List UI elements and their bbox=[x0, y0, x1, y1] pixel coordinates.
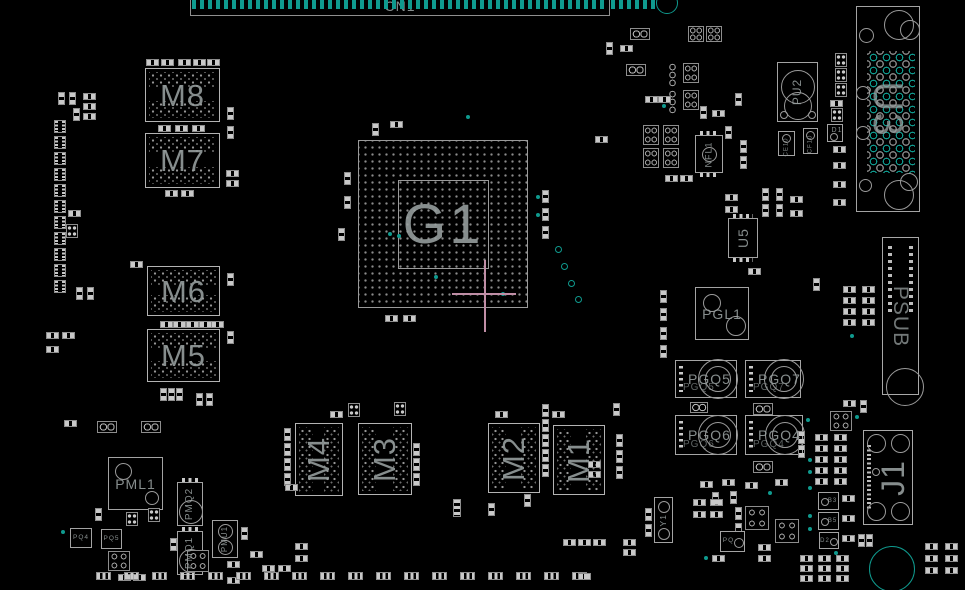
resistor-pack bbox=[54, 200, 66, 213]
smd-pad bbox=[843, 286, 856, 293]
smd-pad bbox=[680, 175, 693, 182]
cn1-pads-ext bbox=[611, 0, 657, 9]
fet-pgq6[interactable]: PGQ6 PGQ6 bbox=[675, 415, 737, 455]
smd-pad bbox=[180, 572, 195, 580]
smd-pad bbox=[524, 494, 531, 507]
via-strip bbox=[668, 63, 677, 87]
smd-pad bbox=[725, 126, 732, 139]
smd-pad bbox=[87, 287, 94, 300]
smd-pad bbox=[800, 555, 813, 562]
y1-pad-circle bbox=[658, 501, 670, 513]
d2-circle bbox=[830, 538, 838, 546]
smd-pad bbox=[403, 315, 416, 322]
smd-pad bbox=[563, 539, 576, 546]
smd-pad bbox=[800, 575, 813, 582]
memory-chip-m7[interactable]: M7 bbox=[145, 133, 220, 188]
b3-label: B3 bbox=[828, 498, 837, 504]
smd-pad bbox=[62, 332, 75, 339]
smd-pad bbox=[800, 565, 813, 572]
smd-pad bbox=[278, 565, 291, 572]
smd-pad bbox=[578, 573, 591, 580]
smd-pad bbox=[160, 321, 173, 328]
smd-pad bbox=[834, 456, 847, 463]
smd-pad bbox=[348, 403, 360, 417]
smd-pad bbox=[83, 103, 96, 110]
smd-pad bbox=[925, 543, 938, 550]
smd-pad bbox=[46, 346, 59, 353]
ic-pmu1[interactable]: PMU1 bbox=[212, 520, 238, 558]
u3-hole bbox=[859, 179, 872, 192]
cn1-pads bbox=[192, 0, 608, 9]
resistor-pack bbox=[54, 136, 66, 149]
smd-pad bbox=[748, 268, 761, 275]
smd-pad bbox=[815, 456, 828, 463]
smd-pad bbox=[404, 572, 419, 580]
u5-label: U5 bbox=[736, 228, 750, 248]
transistor bbox=[775, 519, 799, 543]
smd-pad bbox=[432, 572, 447, 580]
smd-pad bbox=[376, 572, 391, 580]
via-highlight bbox=[561, 263, 568, 270]
transistor bbox=[688, 26, 704, 42]
memory-chip-m2[interactable]: M2 bbox=[488, 423, 540, 493]
smd-pad bbox=[208, 572, 223, 580]
memory-chip-m8[interactable]: M8 bbox=[145, 68, 220, 122]
via-highlight bbox=[855, 415, 859, 419]
ic-nfl1[interactable]: NFL1 bbox=[695, 135, 723, 173]
y1-pad-circle bbox=[658, 528, 670, 540]
smd-pad bbox=[542, 190, 549, 203]
smd-pad bbox=[815, 445, 828, 452]
smd-pad bbox=[413, 443, 420, 456]
fet-pgq5[interactable]: PGQ5 PGQ5 bbox=[675, 360, 737, 398]
resistor-pack bbox=[54, 280, 66, 293]
capacitor bbox=[630, 28, 650, 40]
smd-pad bbox=[96, 572, 111, 580]
smd-pad bbox=[186, 321, 199, 328]
resistor-pack bbox=[54, 120, 66, 133]
smd-pad bbox=[146, 59, 159, 66]
smd-pad bbox=[862, 319, 875, 326]
resistor-pack bbox=[54, 184, 66, 197]
smd-pad bbox=[320, 572, 335, 580]
smd-pad bbox=[544, 572, 559, 580]
smd-pad bbox=[126, 512, 138, 526]
pml1-pin-circle bbox=[145, 491, 159, 505]
connector-j1[interactable]: J1 bbox=[863, 430, 913, 525]
via-highlight bbox=[662, 104, 666, 108]
transistor bbox=[706, 26, 722, 42]
pcb-board-canvas[interactable]: CN1 M8 M7 bbox=[0, 0, 965, 590]
j1-hole bbox=[891, 434, 910, 453]
bottom-pad-row bbox=[96, 572, 587, 580]
capacitor bbox=[141, 421, 161, 433]
smd-pad bbox=[925, 555, 938, 562]
smd-pad bbox=[833, 146, 846, 153]
smd-pad bbox=[693, 511, 706, 518]
inductor-pgl1[interactable]: PGL1 bbox=[695, 287, 749, 340]
crystal-y1[interactable]: Y1 bbox=[654, 497, 673, 543]
transistor bbox=[683, 63, 699, 83]
connector-u3[interactable]: U3 bbox=[856, 6, 920, 212]
smd-pad bbox=[660, 327, 667, 340]
pgq7-label-overlap: PGQ7 bbox=[753, 383, 785, 393]
resistor-pack bbox=[54, 248, 66, 261]
smd-pad bbox=[130, 261, 143, 268]
pu2-label: PU2 bbox=[792, 79, 804, 105]
memory-chip-m6[interactable]: M6 bbox=[147, 266, 220, 316]
smd-pad bbox=[227, 561, 240, 568]
smd-pad bbox=[68, 210, 81, 217]
smd-pad bbox=[693, 499, 706, 506]
capacitor bbox=[626, 64, 646, 76]
pmu1-label: PMU1 bbox=[221, 526, 229, 552]
smd-pad bbox=[236, 572, 251, 580]
smd-pad bbox=[227, 273, 234, 286]
memory-chip-m5[interactable]: M5 bbox=[147, 329, 220, 382]
ic-d2[interactable]: D2 bbox=[819, 532, 839, 549]
smd-pad bbox=[722, 479, 735, 486]
via-highlight bbox=[575, 296, 582, 303]
fet-pq5[interactable]: PQ5 bbox=[101, 529, 122, 549]
smd-pad bbox=[613, 403, 620, 416]
psub-label: PSUB bbox=[890, 285, 911, 346]
smd-pad bbox=[834, 478, 847, 485]
pmq1-label: PMQ1 bbox=[185, 537, 195, 569]
m8-label: M8 bbox=[160, 80, 205, 111]
memory-chip-m3[interactable]: M3 bbox=[358, 423, 412, 495]
smd-pad bbox=[798, 445, 805, 458]
smd-pad bbox=[152, 572, 167, 580]
smd-pad bbox=[645, 96, 658, 103]
m2-label: M2 bbox=[498, 435, 529, 480]
transistor bbox=[643, 125, 659, 145]
smd-pad bbox=[161, 59, 174, 66]
smd-pad bbox=[64, 420, 77, 427]
smd-pad bbox=[413, 473, 420, 486]
smd-pad bbox=[227, 331, 234, 344]
inductor-pu2[interactable]: PU2 bbox=[777, 62, 818, 122]
smd-pad bbox=[740, 156, 747, 169]
smd-pad bbox=[818, 565, 831, 572]
capacitor-cf10[interactable]: CF10 bbox=[803, 128, 818, 154]
smd-pad bbox=[862, 308, 875, 315]
smd-pad bbox=[295, 543, 308, 550]
smd-pad bbox=[227, 107, 234, 120]
smd-pad bbox=[835, 53, 847, 67]
pad-group bbox=[843, 286, 875, 326]
smd-pad bbox=[831, 108, 843, 122]
smd-pad bbox=[226, 170, 239, 177]
smd-pad bbox=[284, 428, 291, 441]
smd-pad bbox=[160, 388, 167, 401]
smd-pad bbox=[488, 503, 495, 516]
via-highlight bbox=[397, 234, 401, 238]
smd-pad bbox=[945, 555, 958, 562]
smd-pad bbox=[862, 297, 875, 304]
smd-pad bbox=[815, 434, 828, 441]
pq5-label: PQ5 bbox=[103, 536, 119, 543]
pq-circle bbox=[734, 538, 744, 548]
pad-group bbox=[413, 443, 420, 486]
smd-pad bbox=[616, 450, 623, 463]
transistor bbox=[683, 90, 699, 110]
smd-pad bbox=[658, 96, 671, 103]
smd-pad bbox=[645, 524, 652, 537]
smd-pad bbox=[842, 495, 855, 502]
b5-circle bbox=[821, 518, 829, 526]
smd-pad bbox=[725, 194, 738, 201]
smd-pad bbox=[835, 68, 847, 82]
resistor-pack bbox=[54, 152, 66, 165]
smd-pad bbox=[660, 290, 667, 303]
resistor-pack bbox=[54, 168, 66, 181]
smd-pad bbox=[394, 402, 406, 416]
mounting-hole bbox=[656, 0, 678, 14]
smd-pad bbox=[815, 467, 828, 474]
smd-pad bbox=[211, 321, 224, 328]
smd-pad bbox=[390, 121, 403, 128]
resistor-pack bbox=[54, 216, 66, 229]
smd-pad bbox=[460, 572, 475, 580]
smd-pad bbox=[665, 175, 678, 182]
diode-d1[interactable]: D1 bbox=[827, 124, 843, 142]
smd-pad bbox=[95, 508, 102, 521]
memory-chip-m4[interactable]: M4 bbox=[295, 423, 343, 496]
pgq6-label-overlap: PGQ6 bbox=[683, 440, 715, 450]
smd-pad bbox=[745, 482, 758, 489]
smd-pad bbox=[46, 332, 59, 339]
y1-label: Y1 bbox=[659, 514, 668, 526]
pad-group bbox=[284, 428, 291, 486]
ic-u5[interactable]: U5 bbox=[728, 218, 758, 258]
cursor-crosshair-v bbox=[484, 260, 486, 332]
smd-pad bbox=[866, 534, 873, 547]
smd-pad bbox=[790, 196, 803, 203]
smd-pad bbox=[542, 208, 549, 221]
pml1-label: PML1 bbox=[115, 477, 156, 491]
via-highlight bbox=[808, 527, 812, 531]
smd-pad bbox=[740, 140, 747, 153]
smd-pad bbox=[818, 575, 831, 582]
smd-pad bbox=[836, 575, 849, 582]
capacitor bbox=[753, 461, 773, 473]
smd-pad bbox=[735, 93, 742, 106]
smd-pad bbox=[178, 59, 191, 66]
smd-pad bbox=[488, 572, 503, 580]
ic-b5[interactable]: B5 bbox=[818, 512, 839, 530]
smd-pad bbox=[712, 555, 725, 562]
smd-pad bbox=[860, 400, 867, 413]
smd-pad bbox=[83, 113, 96, 120]
smd-pad bbox=[790, 210, 803, 217]
smd-pad bbox=[284, 458, 291, 471]
smd-pad bbox=[181, 190, 194, 197]
capacitor bbox=[690, 402, 708, 413]
fet-pgq7[interactable]: PGQ7 PGQ7 bbox=[745, 360, 801, 398]
j1-label: J1 bbox=[877, 460, 909, 496]
smd-pad bbox=[725, 206, 738, 213]
smd-pad bbox=[73, 108, 80, 121]
u3-hole bbox=[859, 28, 874, 43]
smd-pad bbox=[616, 466, 623, 479]
m7-label: M7 bbox=[160, 145, 205, 176]
smd-pad bbox=[842, 515, 855, 522]
smd-pad bbox=[834, 434, 847, 441]
smd-pad bbox=[842, 535, 855, 542]
smd-pad bbox=[620, 45, 633, 52]
smd-pad bbox=[843, 319, 856, 326]
smd-pad bbox=[606, 42, 613, 55]
via-highlight bbox=[808, 514, 812, 518]
pad-group bbox=[542, 404, 549, 477]
smd-pad bbox=[66, 224, 78, 238]
gpu-chip-g1[interactable]: G1 bbox=[358, 140, 528, 308]
resistor-pack bbox=[54, 264, 66, 277]
mounting-hole bbox=[886, 368, 924, 406]
smd-pad bbox=[196, 393, 203, 406]
via-highlight bbox=[808, 486, 812, 490]
smd-pad bbox=[815, 478, 828, 485]
smd-pad bbox=[330, 411, 343, 418]
smd-pad bbox=[344, 196, 351, 209]
smd-pad bbox=[660, 308, 667, 321]
smd-pad bbox=[206, 393, 213, 406]
fet-pgq4[interactable]: PGQ4 PGQ4 bbox=[745, 415, 803, 455]
smd-pad bbox=[758, 555, 771, 562]
smd-pad bbox=[700, 481, 713, 488]
ic-b3[interactable]: B3 bbox=[818, 492, 839, 510]
pmq2-label: PMQ2 bbox=[185, 488, 195, 520]
pgq5-label-overlap: PGQ5 bbox=[683, 383, 715, 393]
via-highlight bbox=[568, 280, 575, 287]
inductor-pml1[interactable]: PML1 bbox=[108, 457, 163, 510]
smd-pad bbox=[348, 572, 363, 580]
via-highlight bbox=[704, 556, 708, 560]
connector-cn1[interactable]: CN1 bbox=[190, 0, 610, 16]
smd-pad bbox=[542, 434, 549, 447]
smd-pad bbox=[542, 419, 549, 432]
memory-chip-m1[interactable]: M1 bbox=[553, 425, 605, 495]
via-highlight bbox=[806, 418, 810, 422]
smd-pad bbox=[843, 400, 856, 407]
smd-pad bbox=[542, 464, 549, 477]
smd-pad bbox=[833, 162, 846, 169]
smd-pad bbox=[818, 555, 831, 562]
smd-pad bbox=[76, 287, 83, 300]
smd-pad bbox=[758, 544, 771, 551]
fet-pmq2[interactable]: PMQ2 bbox=[177, 482, 203, 526]
via-highlight bbox=[555, 246, 562, 253]
transistor bbox=[643, 148, 659, 168]
smd-pad bbox=[385, 315, 398, 322]
smd-pad bbox=[227, 126, 234, 139]
smd-pad bbox=[207, 59, 220, 66]
smd-pad bbox=[175, 125, 188, 132]
via-highlight bbox=[768, 491, 772, 495]
smd-pad bbox=[593, 539, 606, 546]
smd-pad bbox=[542, 449, 549, 462]
pgl1-label: PGL1 bbox=[702, 307, 742, 321]
j1-hole bbox=[867, 502, 886, 521]
smd-pad bbox=[170, 538, 177, 551]
smd-pad bbox=[158, 125, 171, 132]
pad-group bbox=[815, 434, 847, 485]
pu2-pin-circle bbox=[808, 111, 816, 119]
smd-pad bbox=[843, 308, 856, 315]
m4-label: M4 bbox=[303, 437, 334, 482]
transistor bbox=[663, 148, 679, 168]
smd-pad bbox=[710, 499, 723, 506]
smd-pad bbox=[813, 278, 820, 291]
smd-pad bbox=[285, 484, 298, 491]
smd-pad bbox=[58, 92, 65, 105]
smd-pad bbox=[516, 572, 531, 580]
via-highlight bbox=[536, 195, 540, 199]
smd-pad bbox=[413, 458, 420, 471]
smd-pad bbox=[176, 388, 183, 401]
smd-pad bbox=[542, 404, 549, 417]
fet-pq4[interactable]: PQ4 bbox=[70, 528, 92, 548]
smd-pad bbox=[241, 527, 248, 540]
via-highlight bbox=[808, 458, 812, 462]
smd-pad bbox=[262, 565, 275, 572]
via-highlight bbox=[434, 275, 438, 279]
smd-pad bbox=[542, 226, 549, 239]
smd-pad bbox=[623, 539, 636, 546]
smd-pad bbox=[762, 188, 769, 201]
smd-pad bbox=[295, 555, 308, 562]
smd-pad bbox=[168, 388, 175, 401]
via-highlight bbox=[61, 530, 65, 534]
m5-label: M5 bbox=[161, 340, 206, 371]
d1-circle bbox=[830, 133, 838, 141]
pgq4-label-overlap: PGQ4 bbox=[753, 440, 785, 450]
fet-pq[interactable]: PQ bbox=[720, 531, 745, 552]
smd-pad bbox=[834, 445, 847, 452]
smd-pad bbox=[616, 434, 623, 447]
smd-pad bbox=[830, 100, 843, 107]
smd-pad bbox=[862, 286, 875, 293]
smd-pad bbox=[735, 507, 742, 520]
smd-pad bbox=[858, 534, 865, 547]
via-highlight bbox=[388, 232, 392, 236]
pad-group bbox=[925, 543, 958, 574]
smd-pad bbox=[578, 539, 591, 546]
smd-pad bbox=[712, 110, 725, 117]
smd-pad bbox=[776, 188, 783, 201]
pad-group bbox=[616, 434, 623, 479]
b3-circle bbox=[821, 498, 829, 506]
smd-pad bbox=[338, 228, 345, 241]
pq4-label: PQ4 bbox=[73, 535, 89, 542]
nfl1-label: NFL1 bbox=[705, 141, 714, 167]
pq-label: PQ bbox=[723, 538, 734, 545]
pad-group bbox=[800, 555, 849, 582]
smd-pad bbox=[292, 572, 307, 580]
via-highlight bbox=[536, 213, 540, 217]
smd-pad bbox=[226, 180, 239, 187]
smd-pad bbox=[700, 106, 707, 119]
smd-pad bbox=[833, 181, 846, 188]
smd-pad bbox=[193, 59, 206, 66]
m3-label: M3 bbox=[369, 436, 400, 481]
capacitor-ce10[interactable]: CE10 bbox=[778, 131, 795, 156]
j1-hole bbox=[867, 434, 886, 453]
capacitor bbox=[753, 403, 773, 415]
smd-pad bbox=[495, 411, 508, 418]
smd-pad bbox=[264, 572, 279, 580]
